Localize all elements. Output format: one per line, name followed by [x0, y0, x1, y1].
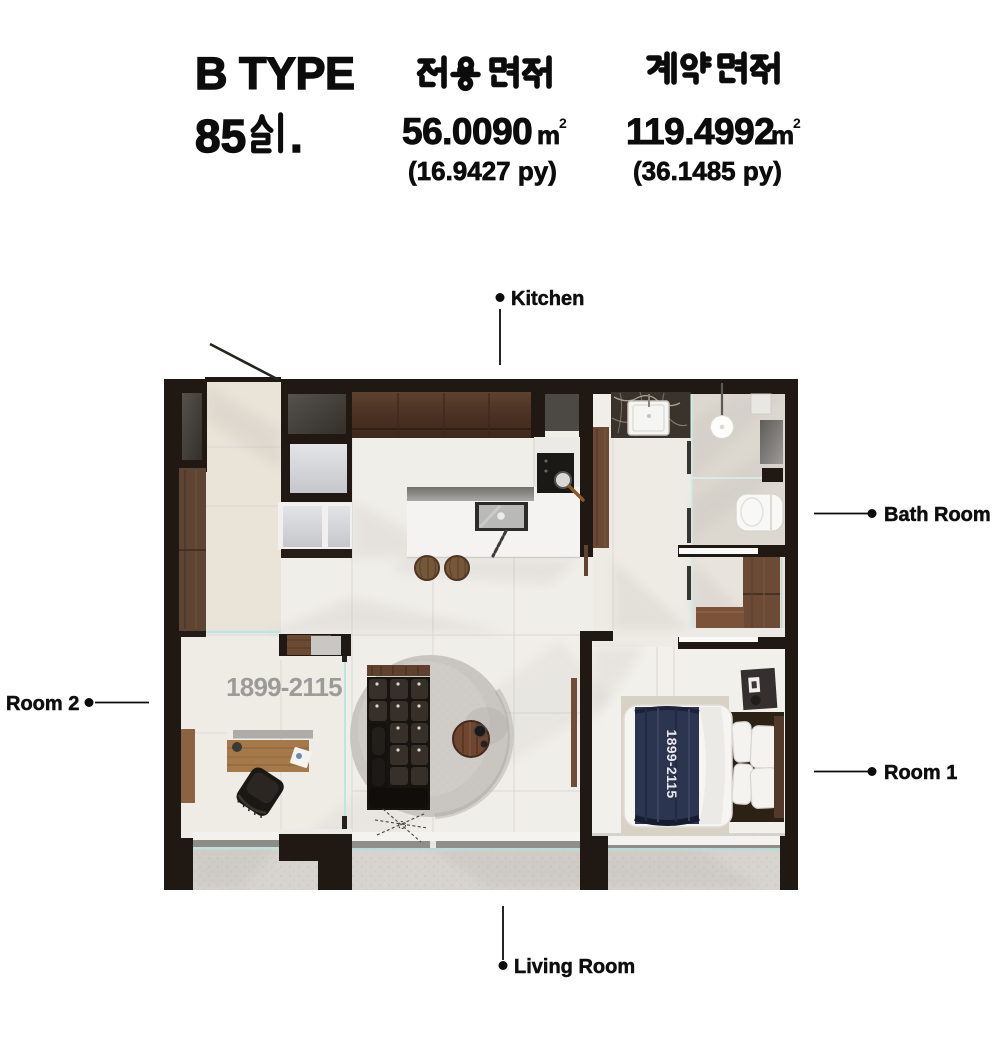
svg-text:m: m [537, 120, 560, 150]
svg-text:85: 85 [195, 110, 246, 162]
svg-text:2: 2 [559, 115, 567, 131]
svg-text:Bath Room: Bath Room [884, 504, 991, 526]
svg-text:2: 2 [793, 115, 801, 131]
svg-text:Room 1: Room 1 [884, 762, 957, 784]
svg-text:1899-2115: 1899-2115 [226, 672, 342, 702]
svg-text:.: . [290, 110, 303, 162]
svg-text:119.4992: 119.4992 [626, 111, 774, 152]
svg-text:1899-2115: 1899-2115 [664, 730, 680, 799]
svg-text:Room 2: Room 2 [6, 693, 79, 715]
svg-text:(16.9427 py): (16.9427 py) [408, 156, 557, 186]
svg-text:56.0090: 56.0090 [402, 111, 532, 152]
svg-text:Living Room: Living Room [514, 956, 635, 978]
svg-text:B TYPE: B TYPE [195, 48, 355, 99]
svg-text:(36.1485 py): (36.1485 py) [633, 156, 782, 186]
svg-text:Kitchen: Kitchen [511, 288, 584, 310]
svg-text:m: m [771, 120, 794, 150]
